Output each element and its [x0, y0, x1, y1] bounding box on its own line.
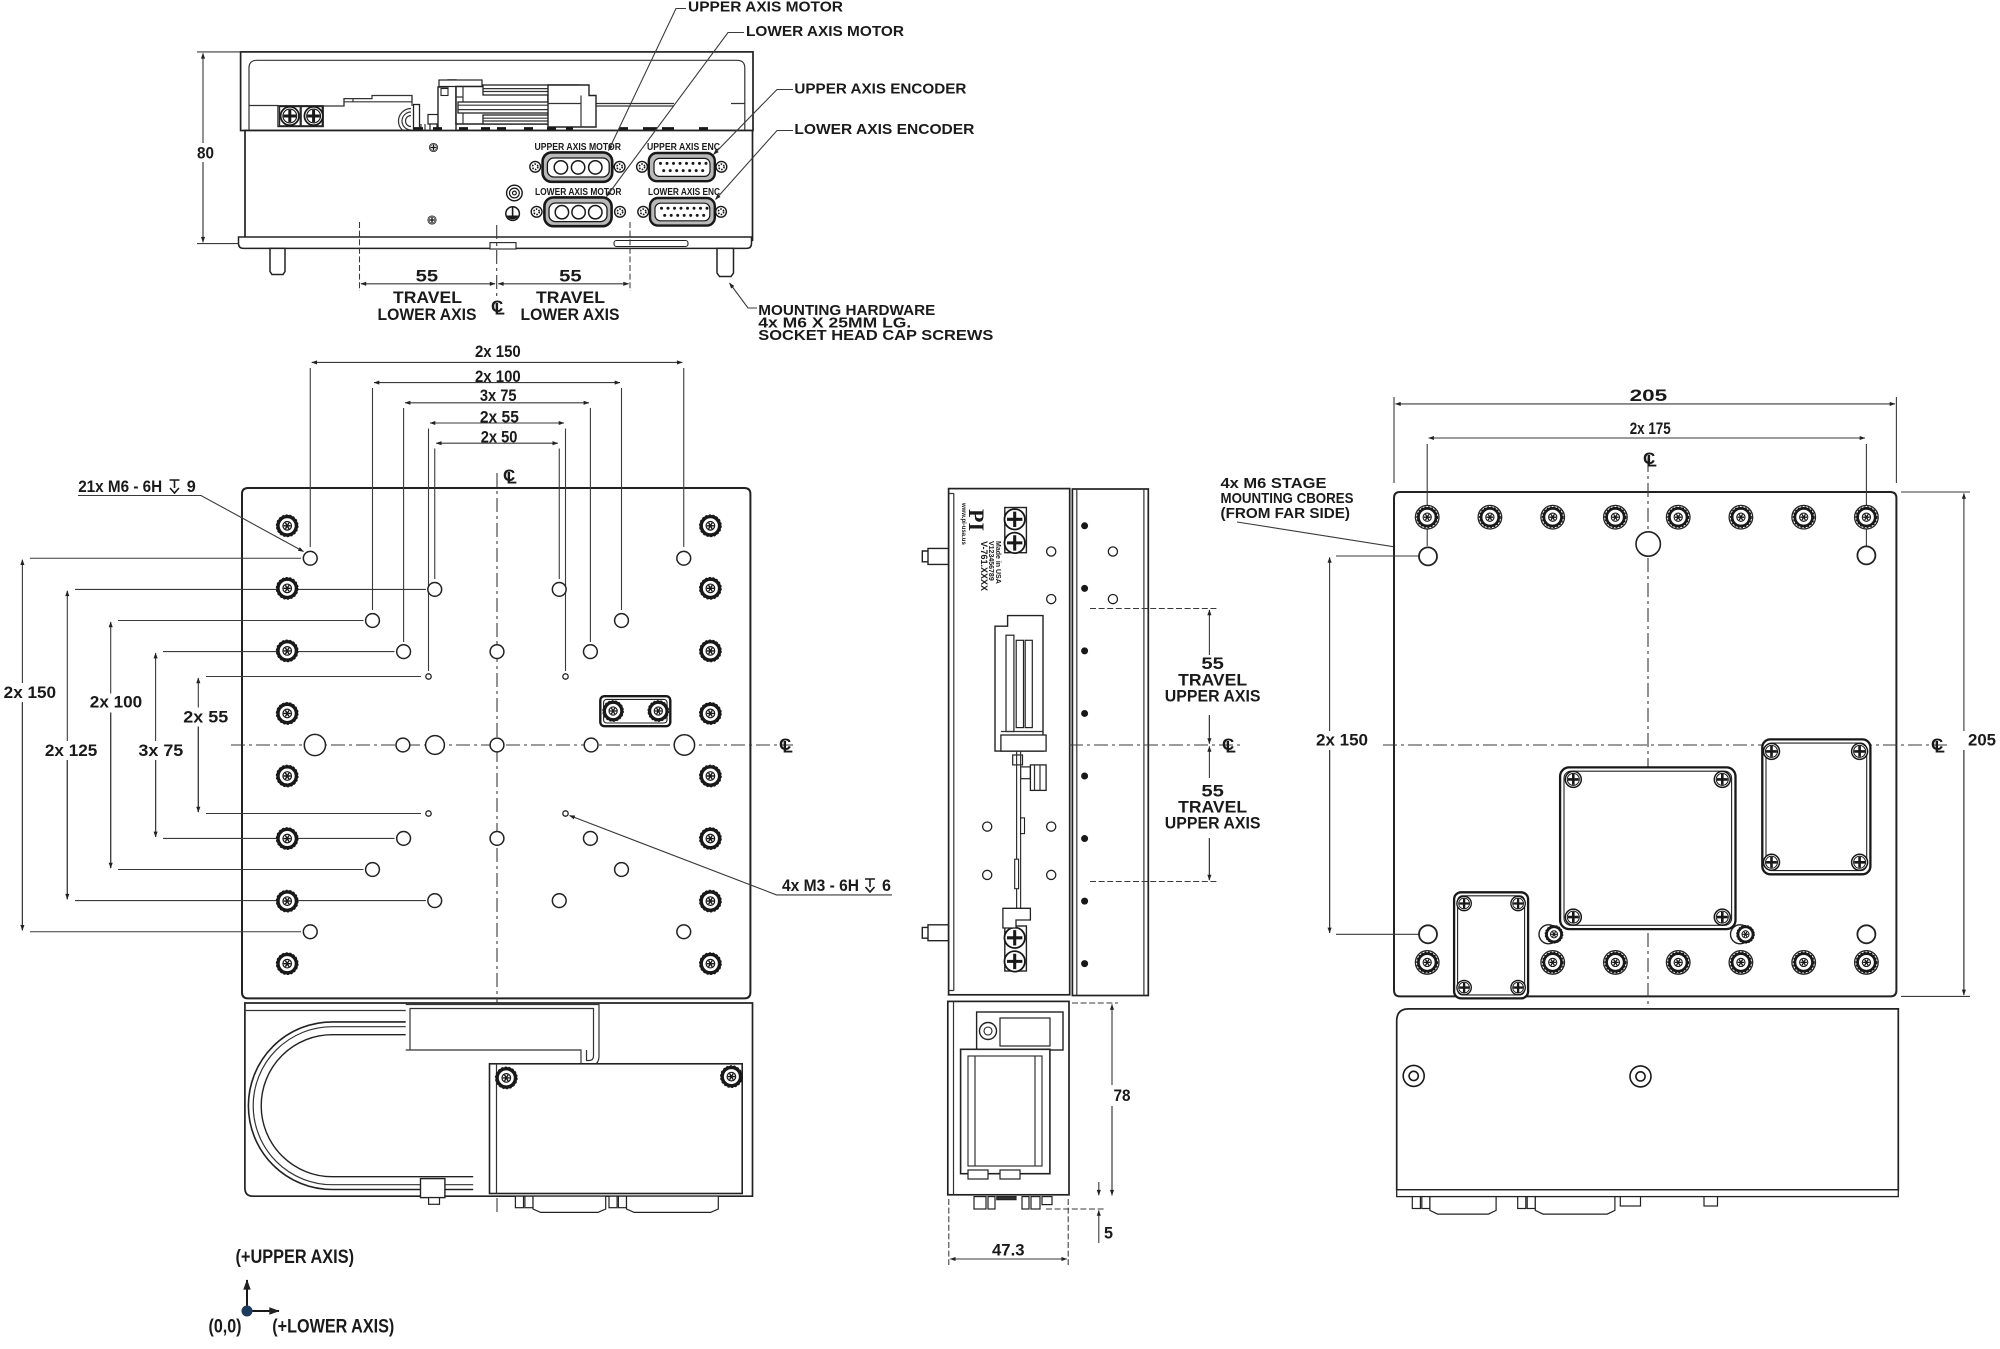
svg-text:L: L — [1935, 738, 1945, 757]
svg-text:www.pi-usa.us: www.pi-usa.us — [960, 502, 966, 545]
svg-text:3x 75: 3x 75 — [480, 386, 517, 405]
svg-text:(0,0): (0,0) — [209, 1317, 242, 1338]
svg-text:LOWER AXIS ENCODER: LOWER AXIS ENCODER — [794, 121, 974, 138]
svg-text:2x 100: 2x 100 — [90, 693, 142, 712]
svg-text:2x 175: 2x 175 — [1630, 419, 1671, 438]
svg-text:(+LOWER AXIS): (+LOWER AXIS) — [272, 1317, 394, 1338]
svg-text:(+UPPER AXIS): (+UPPER AXIS) — [236, 1247, 355, 1268]
svg-text:5: 5 — [1104, 1224, 1113, 1243]
svg-text:205: 205 — [1630, 386, 1668, 405]
svg-text:UPPER AXIS ENC: UPPER AXIS ENC — [647, 142, 720, 153]
svg-text:L: L — [783, 738, 793, 757]
svg-text:6: 6 — [882, 876, 891, 895]
svg-text:21x M6 - 6H: 21x M6 - 6H — [78, 477, 162, 496]
svg-text:80: 80 — [197, 144, 214, 163]
svg-text:LOWER AXIS: LOWER AXIS — [521, 305, 620, 324]
svg-text:UPPER AXIS: UPPER AXIS — [1165, 687, 1261, 706]
svg-text:3x 75: 3x 75 — [138, 741, 183, 760]
svg-text:LOWER AXIS: LOWER AXIS — [378, 305, 477, 324]
svg-text:Made in USA: Made in USA — [994, 541, 1001, 584]
svg-text:2x 50: 2x 50 — [481, 428, 518, 447]
svg-text:2x 100: 2x 100 — [475, 367, 521, 386]
svg-text:PI: PI — [964, 509, 989, 531]
svg-text:2x 125: 2x 125 — [45, 741, 97, 760]
svg-text:UPPER AXIS ENCODER: UPPER AXIS ENCODER — [794, 81, 966, 98]
svg-text:4x M3 - 6H: 4x M3 - 6H — [782, 876, 859, 895]
svg-text:UPPER AXIS: UPPER AXIS — [1165, 814, 1261, 833]
svg-text:55: 55 — [416, 267, 439, 286]
svg-text:L: L — [495, 300, 505, 319]
svg-text:V123456789: V123456789 — [987, 541, 994, 581]
svg-text:2x 150: 2x 150 — [4, 683, 56, 702]
svg-text:2x 150: 2x 150 — [1316, 731, 1368, 750]
svg-text:UPPER AXIS MOTOR: UPPER AXIS MOTOR — [688, 0, 843, 16]
svg-text:L: L — [1226, 738, 1236, 757]
svg-text:2x 150: 2x 150 — [475, 342, 521, 361]
svg-text:L: L — [1647, 452, 1657, 471]
svg-text:55: 55 — [559, 267, 582, 286]
svg-text:LOWER AXIS MOTOR: LOWER AXIS MOTOR — [746, 23, 904, 40]
svg-text:LOWER AXIS ENC: LOWER AXIS ENC — [648, 187, 720, 198]
svg-text:2x 55: 2x 55 — [480, 408, 519, 427]
svg-text:L: L — [507, 469, 517, 488]
svg-text:47.3: 47.3 — [992, 1240, 1025, 1259]
svg-text:(FROM FAR SIDE): (FROM FAR SIDE) — [1221, 505, 1351, 522]
svg-text:78: 78 — [1114, 1086, 1131, 1105]
svg-text:205: 205 — [1968, 731, 1996, 750]
svg-text:2x 55: 2x 55 — [183, 708, 228, 727]
svg-text:9: 9 — [187, 477, 196, 496]
svg-text:SOCKET HEAD CAP SCREWS: SOCKET HEAD CAP SCREWS — [758, 327, 993, 344]
